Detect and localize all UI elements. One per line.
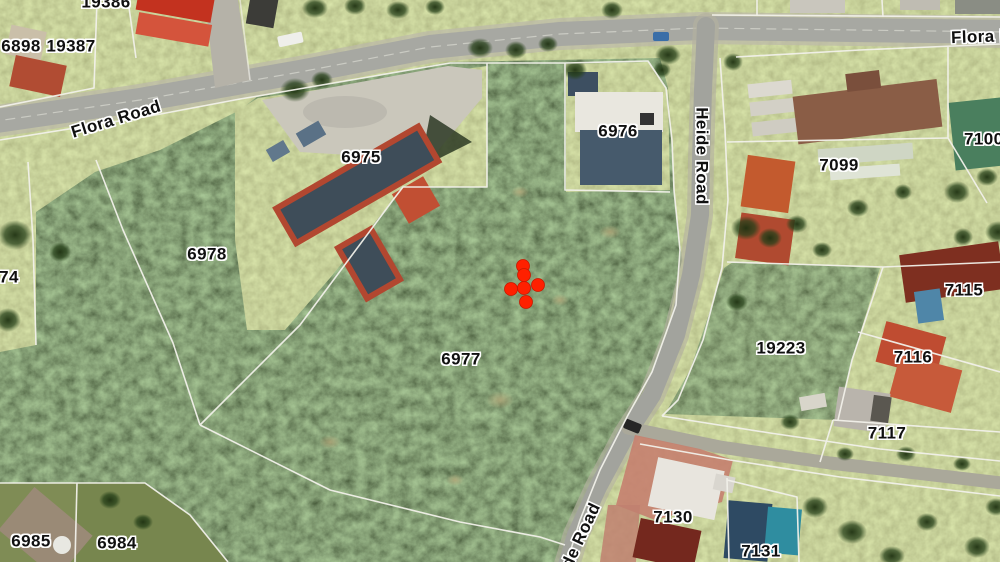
satellite-imagery bbox=[0, 0, 1000, 562]
aerial-map-view[interactable]: 19386689819387Flora RoadFlora Road697569… bbox=[0, 0, 1000, 562]
